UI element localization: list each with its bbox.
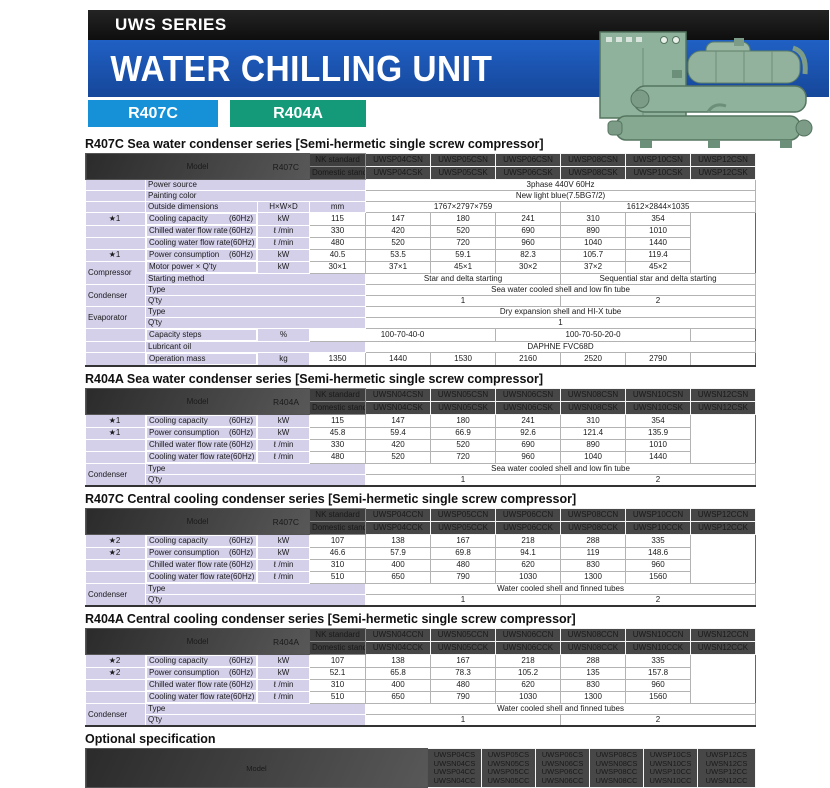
value-cell: 115 — [310, 415, 366, 428]
label-cell: Capacity steps — [146, 329, 257, 341]
table-row: ★2Cooling capacity(60Hz)kW10713816721828… — [86, 535, 756, 548]
spec-table-r404a-central: ModelR404ANK standardUWSN04CCNUWSN05CCNU… — [85, 628, 756, 727]
model-label: Model — [187, 637, 209, 646]
model-name-cell: UWSN08CCK — [561, 642, 626, 655]
model-name-cell: UWSP12CSN — [691, 154, 756, 167]
value-cell: 1440 — [366, 353, 431, 367]
label-cell: Painting color — [146, 191, 366, 202]
label-text: Cooling water flow rate — [149, 572, 230, 582]
value-cell: 335 — [626, 655, 691, 668]
catalog-page: UWS SERIES WATER CHILLING UNIT R407C R40… — [0, 0, 830, 788]
value-cell: 830 — [561, 679, 626, 691]
freq-label: (60Hz) — [229, 226, 253, 236]
table-row: Q'ty12 — [86, 595, 756, 607]
table-row: Cooling water flow rate(60Hz)ℓ /min51065… — [86, 691, 756, 704]
table-row: CondenserTypeSea water cooled shell and … — [86, 464, 756, 475]
value-cell: 59.4 — [366, 427, 431, 439]
value-cell: 180 — [431, 213, 496, 226]
label-cell: Type — [146, 704, 366, 715]
value-cell: 135.9 — [626, 427, 691, 439]
value-cell: 790 — [431, 571, 496, 584]
model-name-cell: UWSP05CSK — [431, 167, 496, 180]
header-row: ModelR407CNK standardUWSP04CCNUWSP05CCNU… — [86, 509, 756, 522]
value-cell: 30×1 — [310, 261, 366, 274]
value-cell: Star and delta starting — [366, 274, 561, 285]
group-cell — [86, 451, 146, 464]
label-cell: Power consumption(60Hz) — [146, 427, 257, 439]
model-name-cell: UWSN12CCN — [691, 629, 756, 642]
refrigerant-label: R407C — [273, 517, 299, 527]
label-cell: Q'ty — [146, 475, 366, 487]
table-row: Starting methodStar and delta startingSe… — [86, 274, 756, 285]
value-cell: 1300 — [561, 571, 626, 584]
table-row: Operation masskg135014401530216025202790 — [86, 353, 756, 367]
model-name-line: UWSN10CC — [644, 777, 697, 786]
value-cell: 2520 — [561, 353, 626, 367]
section-title: R404A Sea water condenser series [Semi-h… — [85, 372, 755, 386]
value-cell: 1560 — [626, 691, 691, 704]
nk-standard-cell: NK standard — [310, 389, 366, 402]
table-row: ★1Power consumption(60Hz)kW45.859.466.99… — [86, 427, 756, 439]
value-cell: 147 — [366, 415, 431, 428]
value-cell: 1040 — [561, 451, 626, 464]
value-cell: 2 — [561, 475, 756, 487]
value-cell: 1300 — [561, 691, 626, 704]
value-cell: 960 — [626, 559, 691, 571]
unit-cell: kW — [258, 261, 310, 274]
model-name-cell: UWSN04CSK — [366, 402, 431, 415]
model-name-cell: UWSP08CSN — [561, 154, 626, 167]
value-cell: 45×1 — [431, 261, 496, 274]
value-cell: 620 — [496, 559, 561, 571]
value-cell: 720 — [431, 451, 496, 464]
value-cell: 720 — [431, 237, 496, 249]
star-marker-cell: ★1 — [86, 415, 146, 428]
value-cell: 65.8 — [366, 667, 431, 679]
freq-label: (60Hz) — [229, 548, 253, 558]
model-name-cell: UWSP04CSN — [366, 154, 431, 167]
value-cell: 690 — [496, 439, 561, 451]
value-cell: 1612×2844×1035 — [561, 202, 756, 213]
value-cell: 520 — [431, 439, 496, 451]
value-cell: 1767×2797×759 — [366, 202, 561, 213]
value-cell: 1560 — [626, 571, 691, 584]
value-cell: 138 — [366, 535, 431, 548]
label-cell: Type — [146, 285, 366, 296]
table-row: EvaporatorTypeDry expansion shell and HI… — [86, 307, 756, 318]
model-name-line: UWSN06CC — [536, 777, 589, 786]
model-name-cell: UWSP04CSK — [366, 167, 431, 180]
value-cell: 1440 — [626, 451, 691, 464]
value-cell: 167 — [431, 655, 496, 668]
label-text: Power consumption — [149, 250, 219, 260]
domestic-standard-cell: Domestic standard — [310, 522, 366, 535]
table-row: ★1Power consumption(60Hz)kW40.553.559.18… — [86, 249, 756, 261]
model-name-cell: UWSN10CSK — [626, 402, 691, 415]
model-header: ModelR407C — [86, 509, 310, 535]
value-cell: 960 — [626, 679, 691, 691]
value-cell: 78.3 — [431, 667, 496, 679]
star-marker-cell: ★1 — [86, 427, 146, 439]
value-cell: 520 — [366, 451, 431, 464]
refrigerant-label: R404A — [273, 637, 299, 647]
group-cell — [86, 691, 146, 704]
value-cell: 69.8 — [431, 547, 496, 559]
value-cell: 82.3 — [496, 249, 561, 261]
label-cell: Power consumption(60Hz) — [146, 249, 257, 261]
domestic-standard-cell: Domestic standard — [310, 402, 366, 415]
value-cell: 94.1 — [496, 547, 561, 559]
table-row: Cooling water flow rate(60Hz)ℓ /min51065… — [86, 571, 756, 584]
model-name-cell: UWSN04CCN — [366, 629, 431, 642]
model-name-cell: UWSN08CCN — [561, 629, 626, 642]
model-name-cell: UWSP05CSUWSN05CSUWSP05CCUWSN05CC — [482, 749, 536, 788]
value-cell: 288 — [561, 535, 626, 548]
label-text: Cooling water flow rate — [149, 692, 230, 702]
value-cell: 354 — [626, 415, 691, 428]
model-name-line: UWSN08CC — [590, 777, 643, 786]
unit-cell: ℓ /min — [258, 679, 310, 691]
model-name-cell: UWSP05CCK — [431, 522, 496, 535]
star-marker-cell: ★2 — [86, 535, 146, 548]
model-name-cell: UWSP08CCK — [561, 522, 626, 535]
label-text: Power consumption — [149, 428, 219, 438]
model-name-cell: UWSP06CSUWSN06CSUWSP06CCUWSN06CC — [536, 749, 590, 788]
model-name-cell: UWSP04CSUWSN04CSUWSP04CCUWSN04CC — [428, 749, 482, 788]
domestic-standard-cell: Domestic standard — [310, 167, 366, 180]
value-cell: 480 — [310, 237, 366, 249]
value-cell: 218 — [496, 655, 561, 668]
value-cell: 520 — [366, 237, 431, 249]
value-cell: 100-70-40-0 — [310, 329, 496, 342]
value-cell: 1 — [366, 296, 561, 307]
value-cell: 180 — [431, 415, 496, 428]
series-label: UWS SERIES — [88, 15, 227, 35]
model-name-cell: UWSP10CSK — [626, 167, 691, 180]
value-cell: 1010 — [626, 439, 691, 451]
model-name-cell: UWSN04CSN — [366, 389, 431, 402]
unit-cell: ℓ /min — [258, 571, 310, 584]
group-cell — [86, 329, 146, 342]
value-cell: 2 — [561, 595, 756, 607]
label-cell: Q'ty — [146, 595, 366, 607]
value-cell: 400 — [366, 679, 431, 691]
value-cell: 37×2 — [561, 261, 626, 274]
value-cell: 53.5 — [366, 249, 431, 261]
group-cell — [86, 225, 146, 237]
spec-table-r407c-sea: ModelR407CNK standardUWSP04CSNUWSP05CSNU… — [85, 153, 756, 367]
model-name-cell: UWSP05CCN — [431, 509, 496, 522]
table-row: Lubricant oilDAPHNE FVC68D — [86, 342, 756, 353]
value-cell: 620 — [496, 679, 561, 691]
value-cell: 119 — [561, 547, 626, 559]
table-row: Painting colorNew light blue(7.5BG7/2) — [86, 191, 756, 202]
value-cell: 107 — [310, 655, 366, 668]
value-cell: 1 — [366, 318, 756, 329]
label-text: Cooling capacity — [149, 416, 208, 426]
nk-standard-cell: NK standard — [310, 509, 366, 522]
tables-container: R407C Sea water condenser series [Semi-h… — [85, 137, 755, 788]
section-title: R407C Central cooling condenser series [… — [85, 492, 755, 506]
optional-spec-table: ModelUWSP04CSUWSN04CSUWSP04CCUWSN04CCUWS… — [85, 748, 756, 788]
model-name-cell: UWSP10CSUWSN10CSUWSP10CCUWSN10CC — [644, 749, 698, 788]
freq-label: (60Hz) — [229, 416, 253, 426]
value-cell: 1010 — [626, 225, 691, 237]
value-cell: New light blue(7.5BG7/2) — [366, 191, 756, 202]
value-cell: 2 — [561, 296, 756, 307]
star-marker-cell: ★1 — [86, 213, 146, 226]
value-cell: 3phase 440V 60Hz — [366, 180, 756, 191]
label-cell: Cooling water flow rate(60Hz) — [146, 571, 257, 583]
model-name-cell: UWSN08CSK — [561, 402, 626, 415]
value-cell: 510 — [310, 691, 366, 704]
value-cell: 480 — [431, 559, 496, 571]
value-cell: 37×1 — [366, 261, 431, 274]
refrigerant-badge-r404a: R404A — [230, 100, 366, 127]
model-name-cell: UWSP12CSK — [691, 167, 756, 180]
model-name-cell: UWSP12CSUWSN12CSUWSP12CCUWSN12CC — [698, 749, 756, 788]
star-marker-cell: ★2 — [86, 547, 146, 559]
freq-label: (60Hz) — [229, 680, 253, 690]
value-cell: 66.9 — [431, 427, 496, 439]
label-text: Chilled water flow rate — [149, 680, 228, 690]
star-marker-cell: ★2 — [86, 667, 146, 679]
value-cell: 167 — [431, 535, 496, 548]
model-name-line: UWSN05CC — [482, 777, 535, 786]
label-cell: Chilled water flow rate(60Hz) — [146, 225, 257, 237]
value-cell: 1440 — [626, 237, 691, 249]
group-cell — [86, 353, 146, 367]
freq-label: (60Hz) — [229, 668, 253, 678]
group-cell: Evaporator — [86, 307, 146, 329]
value-cell: Water cooled shell and finned tubes — [366, 584, 756, 595]
value-cell: 147 — [366, 213, 431, 226]
group-cell — [86, 439, 146, 451]
value-cell: Sequential star and delta starting — [561, 274, 756, 285]
table-row: Q'ty12 — [86, 475, 756, 487]
table-row: Capacity steps%100-70-40-0100-70-50-20-0 — [86, 329, 756, 342]
label-cell: Q'ty — [146, 296, 366, 307]
section-title: Optional specification — [85, 732, 755, 746]
label-cell: Type — [146, 584, 366, 595]
value-cell: 288 — [561, 655, 626, 668]
group-cell: Condenser — [86, 464, 146, 487]
model-name-cell: UWSN12CCK — [691, 642, 756, 655]
label-cell: Cooling capacity(60Hz) — [146, 655, 257, 667]
value-cell: 890 — [561, 225, 626, 237]
table-row: Q'ty12 — [86, 715, 756, 727]
value-cell: 960 — [496, 451, 561, 464]
refrigerant-label: R407C — [273, 162, 299, 172]
value-cell: 1 — [366, 715, 561, 727]
model-header: Model — [86, 749, 428, 788]
value-cell: 2 — [561, 715, 756, 727]
group-cell — [86, 191, 146, 202]
group-cell: Condenser — [86, 704, 146, 727]
group-cell: Condenser — [86, 584, 146, 607]
label-text: Cooling water flow rate — [149, 238, 230, 248]
label-cell: Starting method — [146, 274, 366, 285]
model-name-cell: UWSP04CCN — [366, 509, 431, 522]
model-name-cell: UWSN06CCN — [496, 629, 561, 642]
freq-label: (60Hz) — [229, 536, 253, 546]
label-cell: Q'ty — [146, 715, 366, 727]
header-row: ModelR404ANK standardUWSN04CSNUWSN05CSNU… — [86, 389, 756, 402]
model-name-cell: UWSP10CCN — [626, 509, 691, 522]
table-row: ★1Cooling capacity(60Hz)kW11514718024131… — [86, 213, 756, 226]
table-row: Power source3phase 440V 60Hz — [86, 180, 756, 191]
freq-label: (60Hz) — [229, 656, 253, 666]
model-name-cell: UWSN05CCK — [431, 642, 496, 655]
model-name-cell: UWSP06CSK — [496, 167, 561, 180]
label-cell: Power source — [146, 180, 366, 191]
unit-cell: ℓ /min — [258, 691, 310, 704]
value-cell: 1 — [366, 595, 561, 607]
header-row: ModelUWSP04CSUWSN04CSUWSP04CCUWSN04CCUWS… — [86, 749, 756, 788]
unit-cell: ℓ /min — [258, 559, 310, 571]
value-cell: 510 — [310, 571, 366, 584]
label-cell: Cooling water flow rate(60Hz) — [146, 237, 257, 249]
model-name-cell: UWSN06CSN — [496, 389, 561, 402]
model-header: ModelR404A — [86, 629, 310, 655]
group-cell: Condenser — [86, 285, 146, 307]
nk-standard-cell: NK standard — [310, 629, 366, 642]
value-cell: 310 — [561, 415, 626, 428]
value-cell: 105.7 — [561, 249, 626, 261]
label-cell: Type — [146, 464, 366, 475]
freq-label: (60Hz) — [230, 572, 254, 582]
unit-cell: kW — [258, 427, 310, 439]
star-marker-cell: ★1 — [86, 249, 146, 261]
model-name-cell: UWSN10CCN — [626, 629, 691, 642]
unit-cell: kW — [258, 667, 310, 679]
value-cell: 40.5 — [310, 249, 366, 261]
freq-label: (60Hz) — [230, 692, 254, 702]
group-cell — [86, 202, 146, 213]
group-cell — [86, 237, 146, 249]
value-cell: 30×2 — [496, 261, 561, 274]
model-header: ModelR407C — [86, 154, 310, 180]
model-name-cell: UWSN04CCK — [366, 642, 431, 655]
model-name-cell: UWSP12CCK — [691, 522, 756, 535]
label-cell: Cooling capacity(60Hz) — [146, 415, 257, 427]
table-row: Q'ty1 — [86, 318, 756, 329]
value-cell: 2160 — [496, 353, 561, 367]
group-cell — [86, 559, 146, 571]
model-name-cell: UWSP10CSN — [626, 154, 691, 167]
value-cell: 1030 — [496, 571, 561, 584]
model-name-cell: UWSN06CSK — [496, 402, 561, 415]
value-cell: 650 — [366, 691, 431, 704]
table-row: Outside dimensionsH×W×Dmm1767×2797×75916… — [86, 202, 756, 213]
value-cell: 148.6 — [626, 547, 691, 559]
unit-cell: ℓ /min — [258, 237, 310, 249]
model-name-cell: UWSP08CSK — [561, 167, 626, 180]
model-name-cell: UWSN06CCK — [496, 642, 561, 655]
unit-cell: mm — [310, 202, 366, 213]
label-text: Chilled water flow rate — [149, 440, 228, 450]
value-cell: 420 — [366, 225, 431, 237]
table-row: CondenserTypeWater cooled shell and finn… — [86, 584, 756, 595]
model-label: Model — [187, 397, 209, 406]
unit-cell: % — [258, 329, 310, 342]
value-cell: 310 — [310, 679, 366, 691]
model-name-line: UWSN12CC — [698, 777, 755, 786]
table-row: Cooling water flow rate(60Hz)ℓ /min48052… — [86, 237, 756, 249]
model-name-cell: UWSN10CSN — [626, 389, 691, 402]
header-row: ModelR404ANK standardUWSN04CCNUWSN05CCNU… — [86, 629, 756, 642]
value-cell: 960 — [496, 237, 561, 249]
label-text: Chilled water flow rate — [149, 226, 228, 236]
value-cell: 135 — [561, 667, 626, 679]
unit-cell: kW — [258, 535, 310, 548]
section-title: R404A Central cooling condenser series [… — [85, 612, 755, 626]
model-name-cell: UWSN05CSN — [431, 389, 496, 402]
label-cell: Cooling water flow rate(60Hz) — [146, 691, 257, 703]
label-cell: Power consumption(60Hz) — [146, 667, 257, 679]
value-cell: 1 — [366, 475, 561, 487]
freq-label: (60Hz) — [229, 440, 253, 450]
value-cell: 107 — [310, 535, 366, 548]
value-cell: 59.1 — [431, 249, 496, 261]
table-row: Chilled water flow rate(60Hz)ℓ /min33042… — [86, 439, 756, 451]
unit-cell: kg — [258, 353, 310, 367]
label-cell: Chilled water flow rate(60Hz) — [146, 559, 257, 571]
freq-label: (60Hz) — [230, 452, 254, 462]
value-cell: 57.9 — [366, 547, 431, 559]
value-cell: 2790 — [626, 353, 691, 367]
unit-cell: kW — [258, 547, 310, 559]
value-cell: 92.6 — [496, 427, 561, 439]
value-cell: 119.4 — [626, 249, 691, 261]
value-cell: 157.8 — [626, 667, 691, 679]
label-cell: Chilled water flow rate(60Hz) — [146, 439, 257, 451]
value-cell: 121.4 — [561, 427, 626, 439]
unit-cell: ℓ /min — [258, 439, 310, 451]
label-cell: Cooling water flow rate(60Hz) — [146, 451, 257, 463]
model-name-cell: UWSN05CSK — [431, 402, 496, 415]
table-row: CondenserTypeSea water cooled shell and … — [86, 285, 756, 296]
model-name-cell: UWSN12CSK — [691, 402, 756, 415]
table-row: Chilled water flow rate(60Hz)ℓ /min31040… — [86, 559, 756, 571]
value-cell: 1530 — [431, 353, 496, 367]
label-text: Motor power × Q'ty — [149, 262, 217, 272]
unit-cell: kW — [258, 655, 310, 668]
label-cell: Outside dimensions — [146, 202, 258, 213]
value-cell: 138 — [366, 655, 431, 668]
model-name-cell: UWSP10CCK — [626, 522, 691, 535]
freq-label: (60Hz) — [229, 428, 253, 438]
value-cell: 480 — [431, 679, 496, 691]
chiller-product-photo — [588, 18, 828, 150]
value-cell: 890 — [561, 439, 626, 451]
label-cell: Motor power × Q'ty — [146, 261, 257, 273]
chiller-illustration — [588, 18, 828, 150]
label-text: Cooling capacity — [149, 656, 208, 666]
value-cell: 420 — [366, 439, 431, 451]
nk-standard-cell: NK standard — [310, 154, 366, 167]
refrigerant-label: R404A — [273, 397, 299, 407]
value-cell: 46.6 — [310, 547, 366, 559]
label-text: Capacity steps — [149, 330, 201, 340]
value-cell: 310 — [561, 213, 626, 226]
domestic-standard-cell: Domestic standard — [310, 642, 366, 655]
group-cell — [86, 679, 146, 691]
label-cell: Chilled water flow rate(60Hz) — [146, 679, 257, 691]
value-cell: 310 — [310, 559, 366, 571]
table-row: ★2Power consumption(60Hz)kW46.657.969.89… — [86, 547, 756, 559]
spec-table-r404a-sea: ModelR404ANK standardUWSN04CSNUWSN05CSNU… — [85, 388, 756, 487]
